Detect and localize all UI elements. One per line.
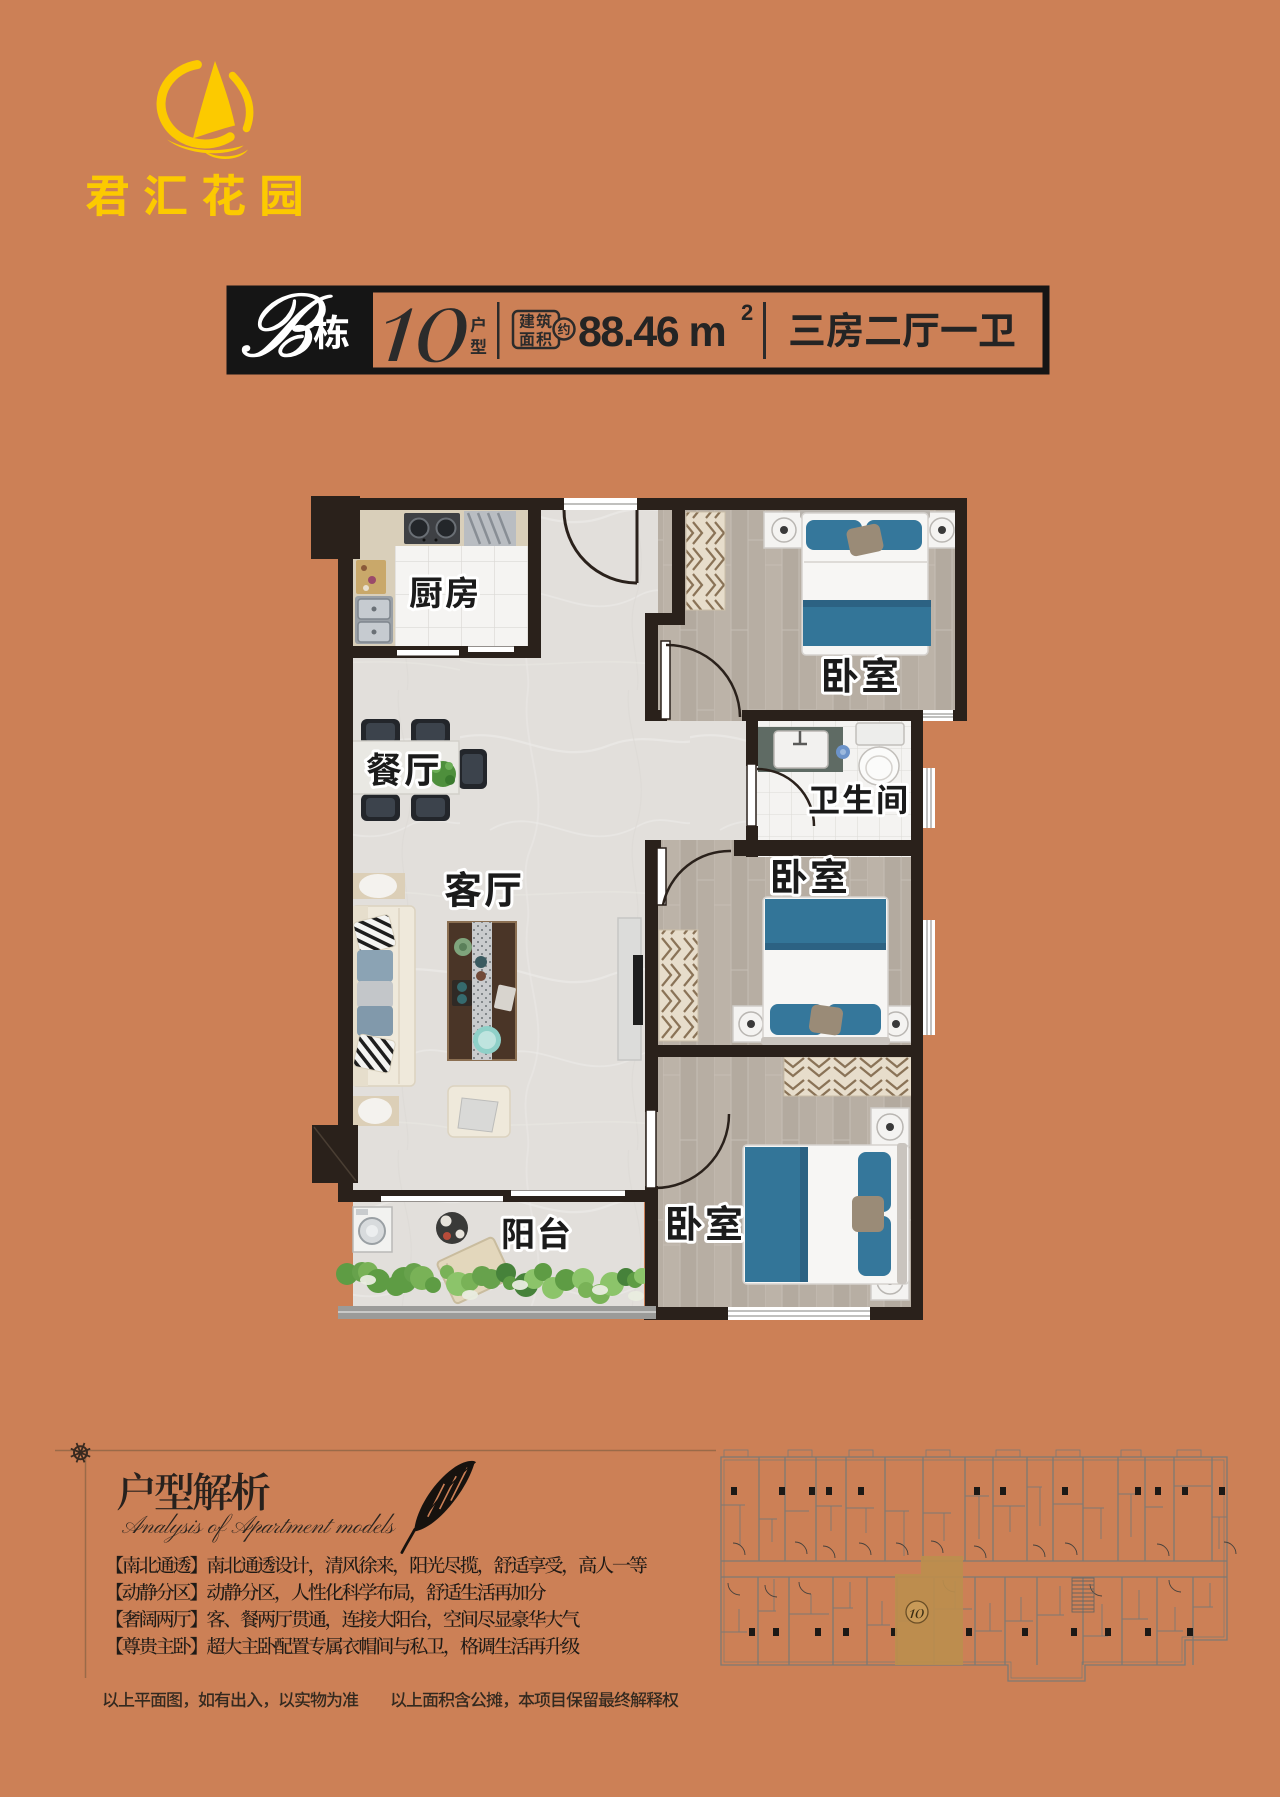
svg-text:2: 2 [741, 300, 753, 325]
svg-text:88.46 m: 88.46 m [578, 308, 725, 356]
